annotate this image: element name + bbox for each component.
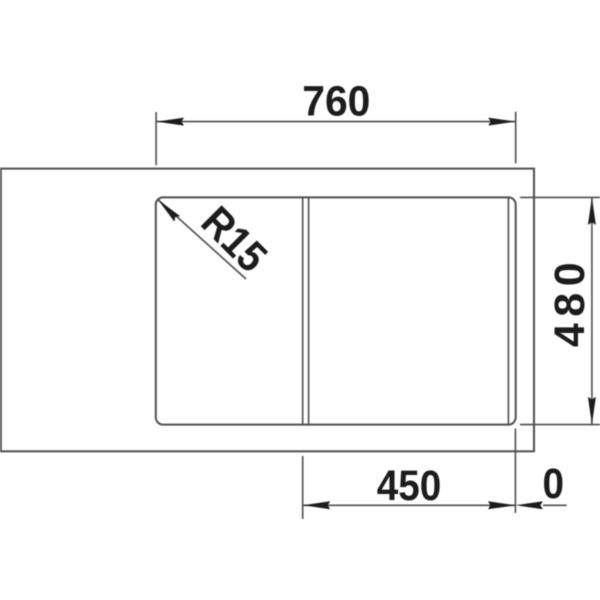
svg-text:R15: R15 (192, 197, 276, 281)
svg-text:450: 450 (377, 461, 442, 509)
svg-text:760: 760 (302, 76, 370, 124)
svg-text:480: 480 (546, 256, 594, 347)
svg-text:0: 0 (543, 459, 565, 507)
